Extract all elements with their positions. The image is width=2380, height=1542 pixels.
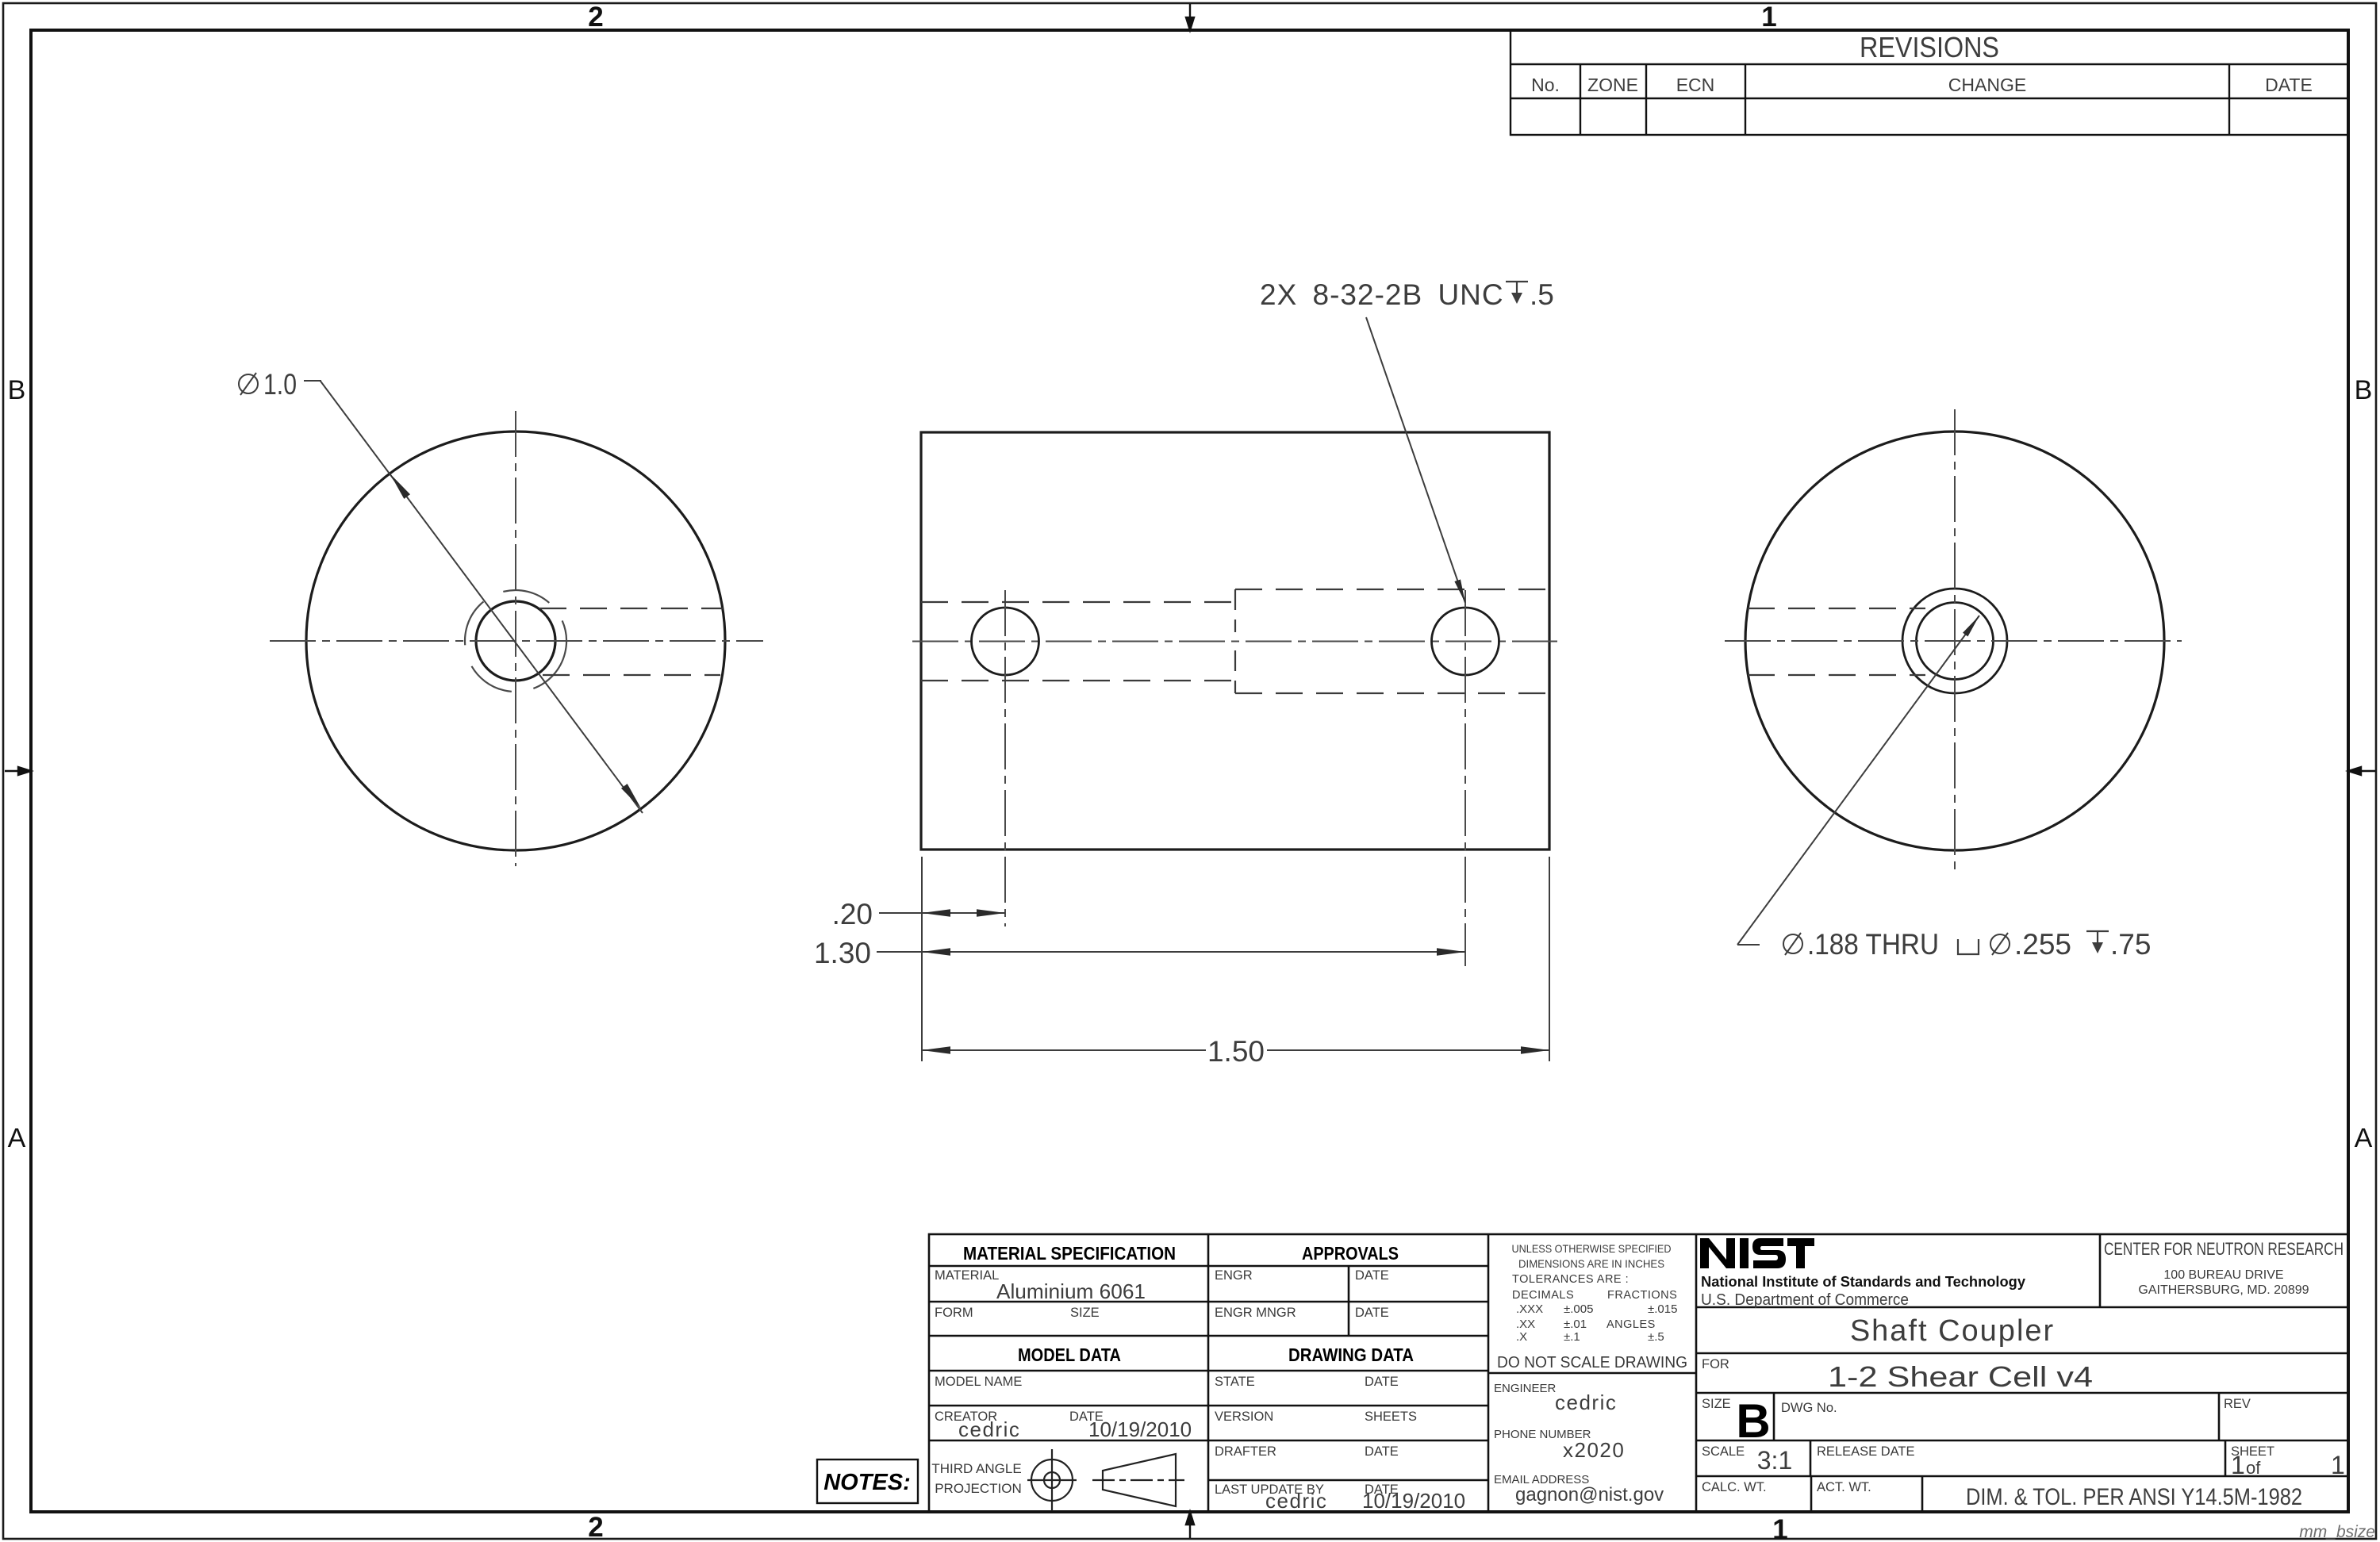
svg-text:.X: .X [1516,1330,1527,1344]
svg-text:SIZE: SIZE [1070,1306,1100,1320]
svg-text:1: 1 [2331,1451,2345,1479]
svg-text:DATE: DATE [1365,1375,1399,1389]
svg-text:1.50: 1.50 [1207,1035,1265,1068]
svg-text:3:1: 3:1 [1757,1446,1792,1475]
svg-text:cedric: cedric [1265,1489,1327,1513]
svg-text:1: 1 [1761,2,1776,33]
svg-text:TOLERANCES ARE :: TOLERANCES ARE : [1512,1273,1629,1286]
svg-text:MODEL DATA: MODEL DATA [1018,1344,1121,1365]
svg-text:2X 8-32-2B UNC: 2X 8-32-2B UNC [1260,278,1504,311]
svg-text:±.1: ±.1 [1564,1330,1580,1344]
svg-text:SHEETS: SHEETS [1365,1410,1417,1424]
svg-text:ZONE: ZONE [1587,75,1638,95]
svg-text:DATE: DATE [2265,75,2313,95]
svg-text:FORM: FORM [935,1306,973,1320]
svg-text:gagnon@nist.gov: gagnon@nist.gov [1515,1484,1664,1506]
svg-text:1: 1 [2231,1451,2245,1479]
svg-text:NOTES:: NOTES: [823,1470,911,1495]
svg-text:APPROVALS: APPROVALS [1302,1243,1399,1264]
svg-text:No.: No. [1531,75,1560,95]
svg-text:2: 2 [588,2,603,33]
svg-text:mm_bsize: mm_bsize [2299,1523,2375,1541]
svg-text:±.015: ±.015 [1648,1302,1677,1316]
svg-text:FRACTIONS: FRACTIONS [1607,1289,1677,1302]
svg-text:FOR: FOR [1702,1357,1729,1371]
svg-text:PROJECTION: PROJECTION [935,1481,1022,1496]
svg-text:.XXX: .XXX [1516,1302,1543,1316]
svg-text:100 BUREAU DRIVE: 100 BUREAU DRIVE [2163,1268,2283,1282]
svg-text:ENGR MNGR: ENGR MNGR [1215,1306,1296,1320]
svg-text:UNLESS OTHERWISE SPECIFIED: UNLESS OTHERWISE SPECIFIED [1512,1242,1672,1255]
svg-text:MATERIAL SPECIFICATION: MATERIAL SPECIFICATION [963,1243,1176,1264]
svg-text:DIM. & TOL. PER ANSI Y14.5M-19: DIM. & TOL. PER ANSI Y14.5M-1982 [1966,1484,2302,1510]
svg-text:RELEASE DATE: RELEASE DATE [1817,1444,1914,1459]
svg-text:1: 1 [1772,1514,1787,1542]
svg-text:DRAFTER: DRAFTER [1215,1444,1276,1459]
svg-text:cedric: cedric [958,1417,1020,1441]
svg-text:DO NOT SCALE DRAWING: DO NOT SCALE DRAWING [1497,1354,1687,1371]
svg-text:A: A [8,1123,26,1153]
svg-text:ENGR: ENGR [1215,1268,1253,1283]
svg-text:SCALE: SCALE [1702,1444,1745,1459]
svg-text:ECN: ECN [1676,75,1715,95]
svg-text:DRAWING DATA: DRAWING DATA [1288,1344,1414,1365]
svg-text:B: B [1736,1394,1770,1448]
svg-text:of: of [2246,1458,2261,1478]
svg-text:GAITHERSBURG, MD. 20899: GAITHERSBURG, MD. 20899 [2138,1283,2309,1297]
svg-text:SIZE: SIZE [1702,1397,1731,1411]
svg-text:DWG No.: DWG No. [1781,1401,1837,1415]
svg-text:MODEL NAME: MODEL NAME [935,1375,1022,1389]
svg-text:±.01: ±.01 [1564,1318,1587,1331]
svg-text:CHANGE: CHANGE [1948,75,2026,95]
svg-text:THIRD ANGLE: THIRD ANGLE [931,1461,1021,1476]
svg-text:DIMENSIONS ARE IN INCHES: DIMENSIONS ARE IN INCHES [1518,1257,1664,1270]
svg-text:1.30: 1.30 [814,937,871,969]
svg-text:REVISIONS: REVISIONS [1860,31,1999,63]
svg-text:STATE: STATE [1215,1375,1255,1389]
svg-text:Aluminium 6061: Aluminium 6061 [996,1279,1146,1303]
svg-text:CALC. WT.: CALC. WT. [1702,1480,1767,1494]
svg-text:±.5: ±.5 [1648,1330,1664,1344]
svg-text:REV: REV [2224,1397,2251,1411]
svg-text:A: A [2355,1123,2373,1153]
svg-text:ACT. WT.: ACT. WT. [1817,1480,1871,1494]
svg-text:±.005: ±.005 [1564,1302,1593,1316]
svg-text:CENTER FOR NEUTRON RESEARCH: CENTER FOR NEUTRON RESEARCH [2104,1239,2344,1259]
svg-text:DECIMALS: DECIMALS [1512,1289,1574,1302]
svg-text:.5: .5 [1530,278,1554,311]
svg-text:National Institute of Standard: National Institute of Standards and Tech… [1701,1273,2026,1290]
svg-text:B: B [2355,375,2373,405]
svg-text:ENGINEER: ENGINEER [1494,1382,1557,1395]
svg-text:.255: .255 [2014,928,2071,961]
svg-text:x2020: x2020 [1563,1438,1625,1462]
svg-text:10/19/2010: 10/19/2010 [1088,1417,1192,1441]
svg-text:.75: .75 [2110,928,2151,961]
svg-text:Shaft Coupler: Shaft Coupler [1850,1314,2055,1348]
svg-text:DATE: DATE [1355,1306,1389,1320]
svg-text:1.0: 1.0 [263,368,297,401]
svg-text:ANGLES: ANGLES [1606,1318,1656,1331]
svg-text:VERSION: VERSION [1215,1410,1273,1424]
svg-text:.XX: .XX [1516,1318,1535,1331]
svg-text:DATE: DATE [1365,1444,1399,1459]
svg-text:DATE: DATE [1355,1268,1389,1283]
svg-text:.188 THRU: .188 THRU [1807,928,1939,961]
svg-text:2: 2 [588,1512,603,1542]
svg-text:U.S. Department of Commerce: U.S. Department of Commerce [1701,1291,1909,1309]
svg-text:B: B [8,375,26,405]
svg-text:10/19/2010: 10/19/2010 [1362,1489,1465,1513]
svg-text:1-2 Shear Cell v4: 1-2 Shear Cell v4 [1828,1360,2093,1393]
svg-text:cedric: cedric [1555,1390,1617,1414]
svg-text:.20: .20 [832,898,873,930]
svg-text:MATERIAL: MATERIAL [935,1268,999,1283]
